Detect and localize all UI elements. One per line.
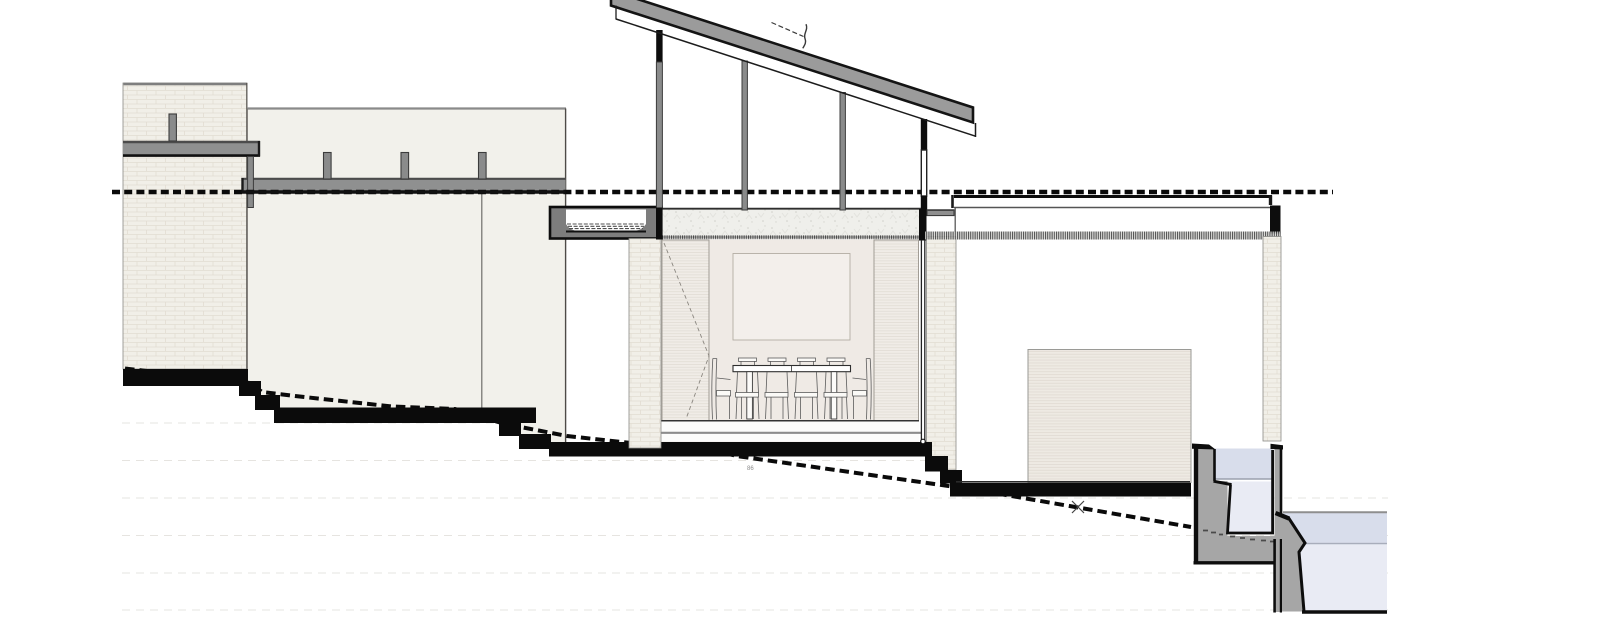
svg-text:86: 86 [747, 466, 754, 472]
